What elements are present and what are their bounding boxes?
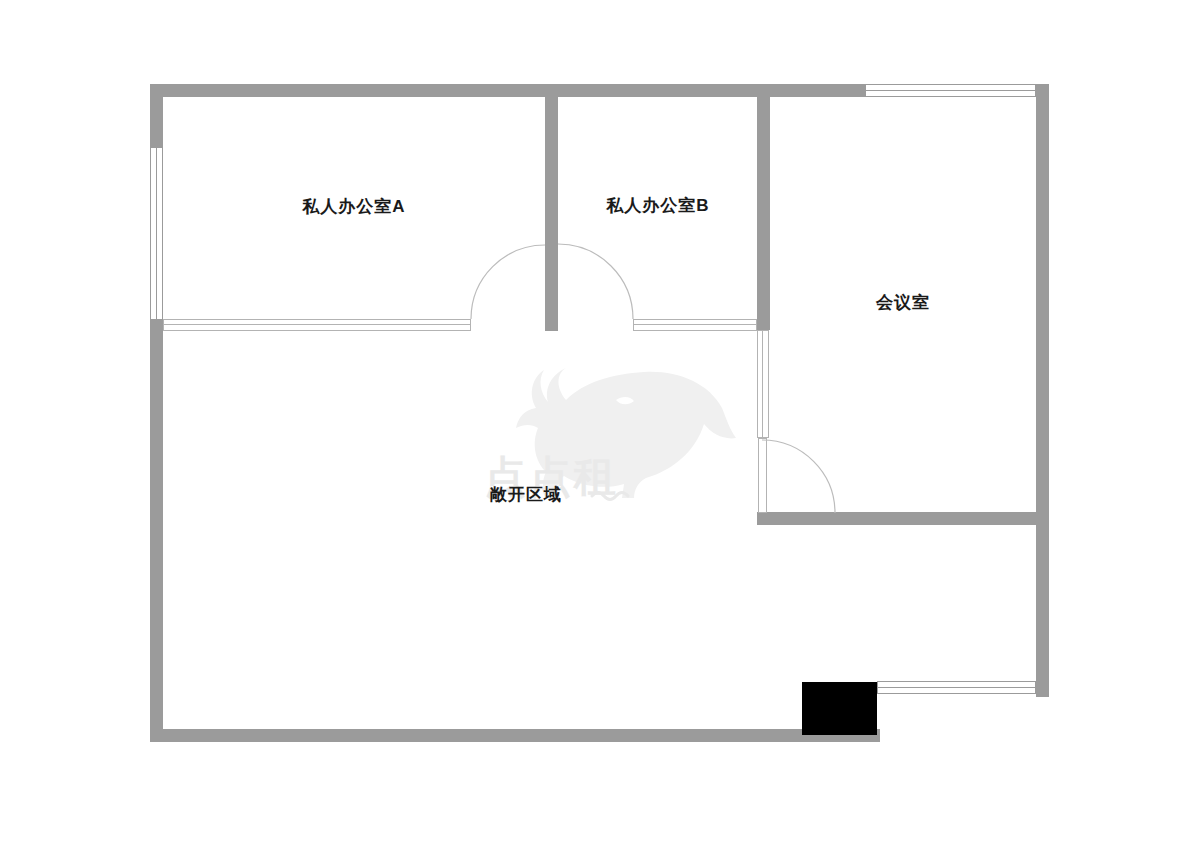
structural-column bbox=[802, 682, 877, 735]
wall-right bbox=[1036, 84, 1049, 697]
wall-divider-office-b-meeting bbox=[757, 97, 770, 330]
room-label-open-area: 敞开区域 bbox=[490, 483, 562, 506]
wall-left-upper bbox=[150, 84, 163, 147]
wall-top bbox=[150, 84, 865, 97]
window-left-icon bbox=[150, 147, 163, 320]
wall-left-lower bbox=[150, 320, 163, 742]
meeting-room-door-leaf bbox=[758, 438, 767, 513]
room-label-private-office-a: 私人办公室A bbox=[302, 195, 405, 218]
glass-partition-office-a bbox=[163, 319, 471, 331]
room-label-meeting-room: 会议室 bbox=[876, 291, 930, 314]
wall-meeting-room-bottom bbox=[757, 512, 1049, 525]
room-label-private-office-b: 私人办公室B bbox=[606, 194, 709, 217]
window-top-icon bbox=[865, 84, 1036, 97]
floor-plan: 点点租 私人办公室A 私人办公室B 会议室 敞开区域 bbox=[0, 0, 1200, 860]
window-bottom-right-icon bbox=[877, 681, 1036, 694]
office-b-door-arc bbox=[558, 244, 633, 319]
glass-partition-meeting-room bbox=[757, 330, 769, 438]
wall-divider-office-a-b bbox=[545, 97, 558, 331]
wall-bottom bbox=[150, 729, 880, 742]
office-a-door-arc bbox=[471, 245, 545, 319]
meeting-room-door-arc bbox=[762, 440, 835, 513]
glass-partition-office-b bbox=[633, 319, 757, 331]
